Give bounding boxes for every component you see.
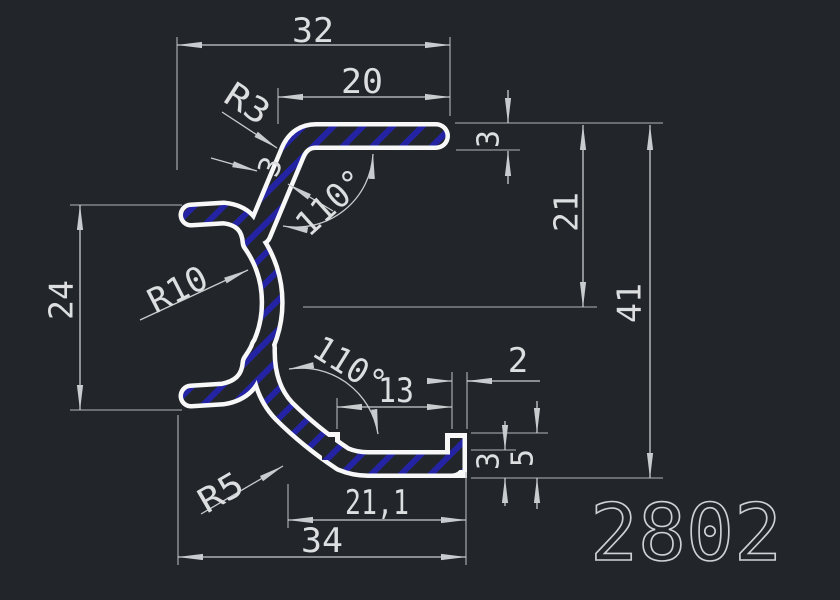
dim-text-bottom-inner-length: 21,1 <box>345 483 409 523</box>
dim-text-overall-width: 32 <box>292 11 334 51</box>
dim-text-bottom-width: 34 <box>301 521 343 561</box>
dim-text-bottom-arm-thickness: 3 <box>472 452 507 470</box>
hatch-end-tab <box>450 438 463 470</box>
part-number: 2802 <box>590 489 782 579</box>
dim-text-mid-depth: 21 <box>547 192 586 232</box>
dim-text-tab-width: 2 <box>508 341 528 381</box>
dim-text-tab-height: 5 <box>506 449 541 467</box>
dim-text-overall-height: 41 <box>610 283 649 323</box>
dim-text-top-arm-length: 20 <box>341 62 383 102</box>
dim-text-left-opening-height: 24 <box>42 280 81 320</box>
cad-viewport[interactable]: 32 20 R3 3 110° 3 21 <box>0 0 840 600</box>
dim-text-notch-to-tab: 13 <box>378 371 414 411</box>
cad-canvas[interactable]: 32 20 R3 3 110° 3 21 <box>0 0 840 600</box>
hatch-notch <box>322 437 335 460</box>
dim-text-top-arm-thickness: 3 <box>472 130 507 148</box>
